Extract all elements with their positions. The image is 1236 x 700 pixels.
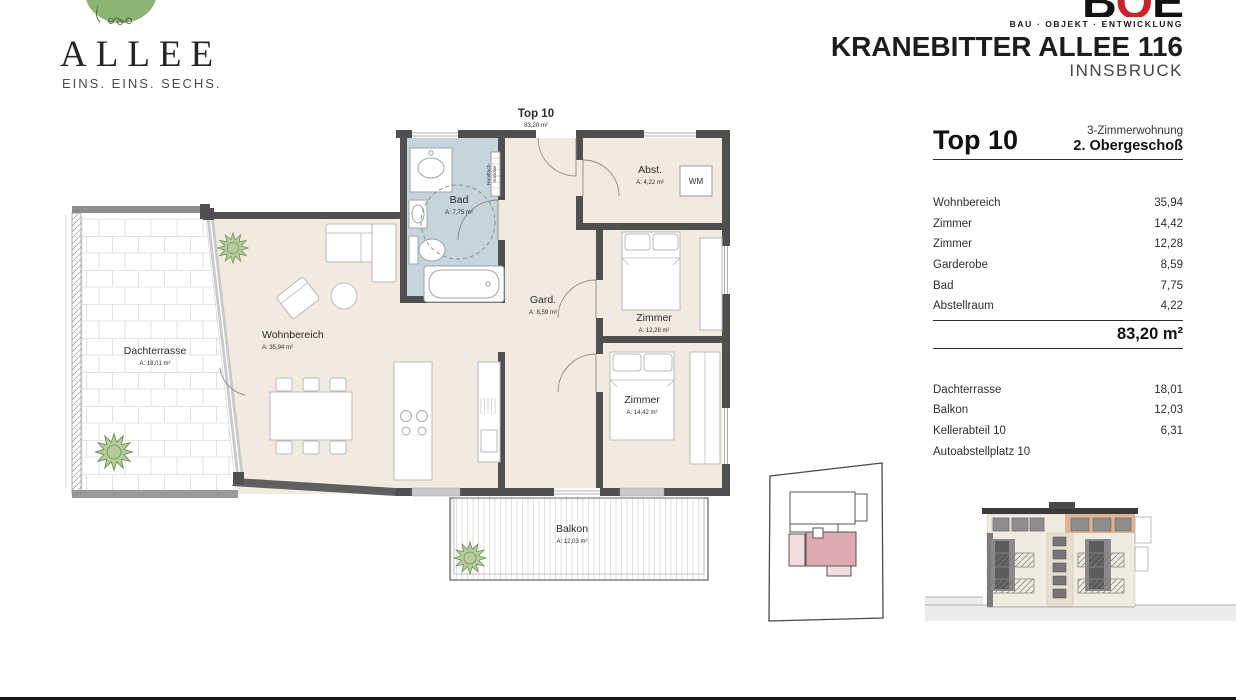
extra-row-value: 18,01 bbox=[1154, 384, 1183, 396]
extra-row: Kellerabteil 10 6,31 bbox=[933, 421, 1183, 442]
area-row-value: 4,22 bbox=[1161, 300, 1183, 312]
label-wohnbereich: Wohnbereich bbox=[262, 329, 324, 341]
plan-title-area: 83,20 m² bbox=[524, 123, 548, 129]
site-building bbox=[789, 492, 867, 576]
area-row-value: 12,28 bbox=[1154, 238, 1183, 250]
boe-logo-letters: BOE bbox=[1082, 0, 1183, 17]
project-title: KRANEBITTER ALLEE 116 bbox=[831, 31, 1183, 63]
area-row: Abstellraum 4,22 bbox=[933, 296, 1183, 317]
area-row: Bad 7,75 bbox=[933, 275, 1183, 296]
terrace-parapet bbox=[72, 213, 81, 494]
allee-tree-icon bbox=[84, 0, 158, 28]
area-row-value: 7,75 bbox=[1161, 280, 1183, 292]
area-row-label: Wohnbereich bbox=[933, 197, 1001, 209]
label-zimmer-klein-area: A: 12,28 m² bbox=[638, 328, 669, 334]
label-bad: Bad bbox=[450, 194, 469, 206]
label-garderobe-area: A: 8,59 m² bbox=[529, 310, 557, 316]
extra-row: Autoabstellplatz 10 bbox=[933, 441, 1183, 462]
extra-row: Dachterrasse 18,01 bbox=[933, 380, 1183, 401]
floor-plan: Top 10 83,20 m² bbox=[60, 100, 740, 600]
label-dachterrasse-area: A: 18,01 m² bbox=[139, 361, 170, 367]
brochure-page: ALLEE EINS. EINS. SECHS. BOE BAU · OBJEK… bbox=[0, 0, 1236, 700]
extra-row-value: 12,03 bbox=[1154, 404, 1183, 416]
area-row-label: Bad bbox=[933, 280, 953, 292]
extra-row: Balkon 12,03 bbox=[933, 400, 1183, 421]
total-area: 83,20 m² bbox=[933, 320, 1183, 349]
site-plan bbox=[765, 455, 895, 625]
label-balkon: Balkon bbox=[556, 523, 588, 535]
extra-row-label: Autoabstellplatz 10 bbox=[933, 446, 1030, 458]
label-handtuchtrockner-1: Handtuch- bbox=[486, 163, 492, 186]
area-row-label: Zimmer bbox=[933, 218, 972, 230]
unit-floor: 2. Obergeschoß bbox=[1073, 138, 1183, 154]
label-dachterrasse: Dachterrasse bbox=[124, 345, 187, 357]
boe-tagline: BAU · OBJEKT · ENTWICKLUNG bbox=[1010, 19, 1183, 29]
area-table: Wohnbereich 35,94 Zimmer 14,42 Zimmer 12… bbox=[933, 193, 1183, 317]
area-row-label: Garderobe bbox=[933, 259, 988, 271]
extras-table: Dachterrasse 18,01 Balkon 12,03 Kellerab… bbox=[933, 380, 1183, 462]
svg-text:WM: WM bbox=[689, 177, 704, 186]
extra-row-label: Kellerabteil 10 bbox=[933, 425, 1006, 437]
unit-type: 3-Zimmerwohnung bbox=[1073, 125, 1183, 137]
boe-letter-e: E bbox=[1152, 0, 1183, 17]
area-row: Zimmer 12,28 bbox=[933, 234, 1183, 255]
allee-logo-subtitle: EINS. EINS. SECHS. bbox=[62, 76, 222, 91]
area-row-value: 35,94 bbox=[1154, 197, 1183, 209]
washing-machine: WM bbox=[680, 166, 712, 196]
label-wohnbereich-area: A: 35,94 m² bbox=[262, 345, 293, 351]
label-handtuchtrockner-2: trockner bbox=[492, 165, 498, 183]
unit-info-header: Top 10 3-Zimmerwohnung 2. Obergeschoß bbox=[933, 125, 1183, 160]
extra-row-value: 6,31 bbox=[1161, 425, 1183, 437]
plan-title: Top 10 bbox=[518, 108, 554, 120]
area-row-value: 14,42 bbox=[1154, 218, 1183, 230]
project-city: INNSBRUCK bbox=[1069, 61, 1183, 81]
boe-logo: BOE bbox=[1033, 0, 1183, 17]
allee-logo-title: ALLEE bbox=[60, 33, 222, 76]
label-zimmer-gross-area: A: 14,42 m² bbox=[626, 410, 657, 416]
building-elevation bbox=[925, 495, 1236, 630]
label-garderobe: Gard. bbox=[530, 294, 556, 306]
area-row: Zimmer 14,42 bbox=[933, 214, 1183, 235]
area-row-label: Zimmer bbox=[933, 238, 972, 250]
boe-letter-o: O bbox=[1116, 0, 1152, 17]
label-zimmer-klein: Zimmer bbox=[636, 312, 672, 324]
unit-name: Top 10 bbox=[933, 127, 1018, 154]
boe-letter-b: B bbox=[1082, 0, 1116, 17]
unit-info-panel: Top 10 3-Zimmerwohnung 2. Obergeschoß Wo… bbox=[933, 125, 1183, 462]
extra-row-label: Dachterrasse bbox=[933, 384, 1001, 396]
label-bad-area: A: 7,75 m² bbox=[445, 210, 473, 216]
extra-row-label: Balkon bbox=[933, 404, 968, 416]
label-abstellraum-area: A: 4,22 m² bbox=[636, 180, 664, 186]
area-row: Garderobe 8,59 bbox=[933, 255, 1183, 276]
area-row-value: 8,59 bbox=[1161, 259, 1183, 271]
elevation-drawing bbox=[925, 502, 1236, 621]
label-balkon-area: A: 12,03 m² bbox=[556, 539, 587, 545]
label-zimmer-gross: Zimmer bbox=[624, 394, 660, 406]
area-row-label: Abstellraum bbox=[933, 300, 994, 312]
label-abstellraum: Abst. bbox=[638, 164, 662, 176]
area-row: Wohnbereich 35,94 bbox=[933, 193, 1183, 214]
